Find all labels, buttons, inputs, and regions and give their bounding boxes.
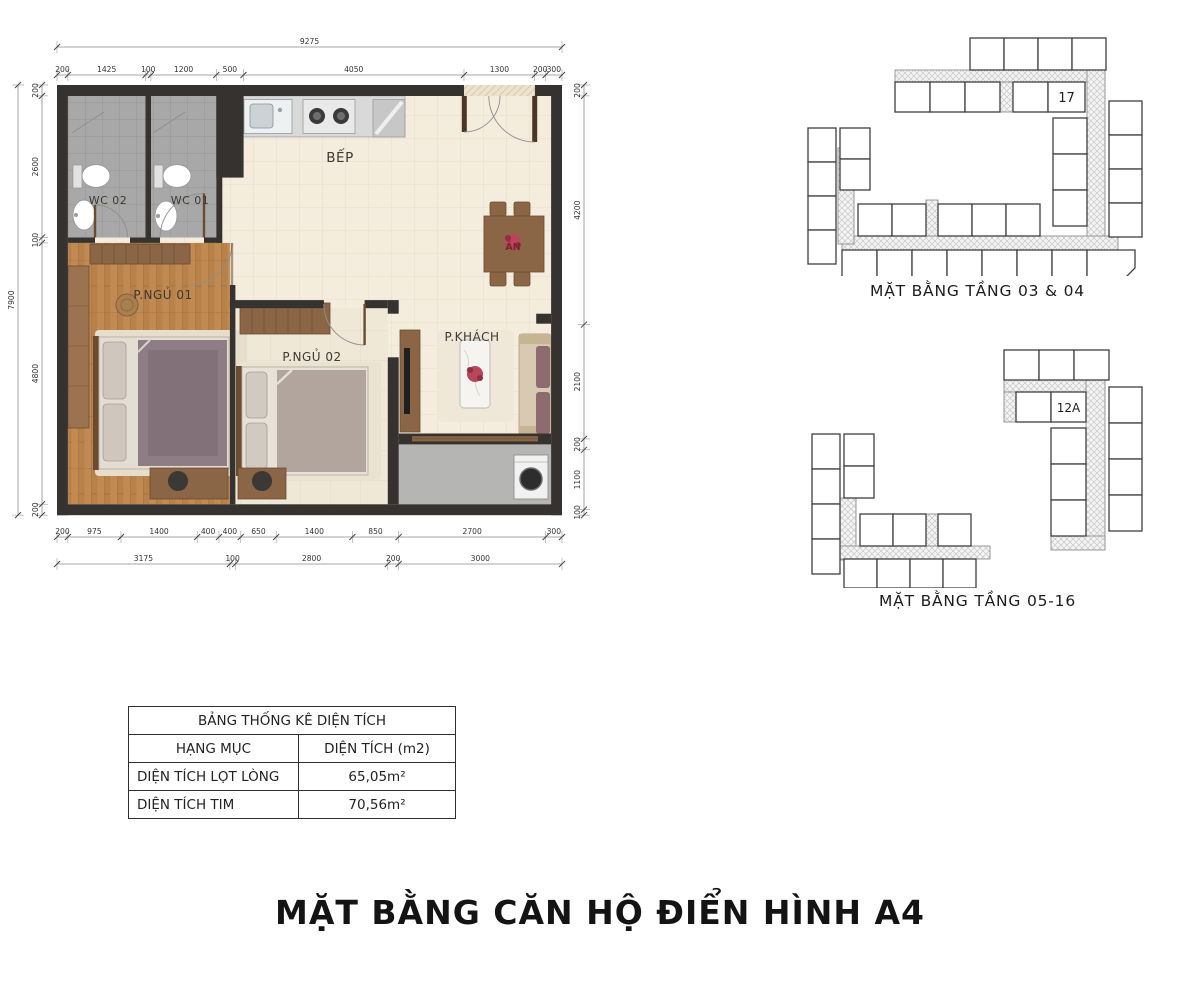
svg-text:1400: 1400 xyxy=(305,527,324,536)
table-row: DIỆN TÍCH TIM 70,56m² xyxy=(129,791,456,819)
svg-text:850: 850 xyxy=(368,527,383,536)
room-label-dining: ĂN xyxy=(505,241,520,253)
chair-bedroom1 xyxy=(168,471,188,491)
toilet-tank-wc01 xyxy=(154,165,163,188)
unit-17-label: 17 xyxy=(1058,91,1075,106)
svg-text:1425: 1425 xyxy=(97,65,116,74)
svg-text:1200: 1200 xyxy=(174,65,193,74)
key-plan-2-caption: MẶT BẰNG TẦNG 05-16 xyxy=(800,592,1155,610)
area-table-title: BẢNG THỐNG KÊ DIỆN TÍCH xyxy=(129,707,456,735)
kitchen-counter xyxy=(238,96,405,137)
entrance-threshold xyxy=(464,85,535,96)
toilet-tank-wc02 xyxy=(73,165,82,188)
room-label-wc2: WC 02 xyxy=(89,194,128,207)
toilet-wc01 xyxy=(163,165,191,188)
svg-text:100: 100 xyxy=(31,233,40,248)
page: BẾP WC 02 WC 01 P.NGỦ 01 P.NGỦ 02 P.KHÁC… xyxy=(0,0,1200,986)
svg-text:500: 500 xyxy=(223,65,238,74)
area-row-value: 65,05m² xyxy=(299,763,456,791)
key-plan-floors-03-04: 17 xyxy=(800,28,1155,276)
svg-text:200: 200 xyxy=(573,437,582,452)
room-label-bedroom2: P.NGỦ 02 xyxy=(282,348,341,364)
svg-text:9275: 9275 xyxy=(300,37,319,46)
svg-text:200: 200 xyxy=(55,527,70,536)
svg-text:2700: 2700 xyxy=(462,527,481,536)
svg-text:4800: 4800 xyxy=(31,364,40,383)
room-label-wc1: WC 01 xyxy=(171,194,210,207)
svg-text:1300: 1300 xyxy=(490,65,509,74)
area-row-label: DIỆN TÍCH TIM xyxy=(129,791,299,819)
svg-text:400: 400 xyxy=(223,527,238,536)
desk-bedroom1 xyxy=(150,468,228,499)
area-table: BẢNG THỐNG KÊ DIỆN TÍCH HẠNG MỤC DIỆN TÍ… xyxy=(128,706,456,819)
svg-text:200: 200 xyxy=(573,83,582,98)
svg-text:3000: 3000 xyxy=(471,554,490,563)
room-label-bedroom1: P.NGỦ 01 xyxy=(133,286,192,302)
unit-12a-label: 12A xyxy=(1057,401,1081,415)
area-table-col-item: HẠNG MỤC xyxy=(129,735,299,763)
svg-text:100: 100 xyxy=(225,554,240,563)
tv xyxy=(404,348,410,414)
area-table-col-area: DIỆN TÍCH (m2) xyxy=(299,735,456,763)
key-plan-1-caption: MẶT BẰNG TẦNG 03 & 04 xyxy=(800,282,1155,300)
svg-text:200: 200 xyxy=(386,554,401,563)
svg-text:2100: 2100 xyxy=(573,372,582,391)
svg-text:200: 200 xyxy=(55,65,70,74)
balcony-items xyxy=(514,455,548,499)
entry-door-leaf xyxy=(532,96,537,142)
bedroom-partition xyxy=(230,285,236,504)
svg-text:2800: 2800 xyxy=(302,554,321,563)
cabinet-bedroom1 xyxy=(68,266,89,428)
svg-text:3175: 3175 xyxy=(134,554,153,563)
wc-partition xyxy=(146,96,152,238)
area-row-label: DIỆN TÍCH LỌT LÒNG xyxy=(129,763,299,791)
svg-text:300: 300 xyxy=(547,527,562,536)
svg-text:100: 100 xyxy=(573,505,582,520)
area-row-value: 70,56m² xyxy=(299,791,456,819)
floor-plan: BẾP WC 02 WC 01 P.NGỦ 01 P.NGỦ 02 P.KHÁC… xyxy=(0,0,640,600)
key-plan-floors-05-16: 12A xyxy=(800,338,1155,588)
entry-door-leaf xyxy=(462,96,467,132)
svg-text:200: 200 xyxy=(31,502,40,517)
svg-text:1400: 1400 xyxy=(149,527,168,536)
svg-text:975: 975 xyxy=(87,527,102,536)
room-label-living: P.KHÁCH xyxy=(445,329,500,344)
svg-text:650: 650 xyxy=(251,527,266,536)
toilet-wc02 xyxy=(82,165,110,188)
svg-text:4200: 4200 xyxy=(573,200,582,219)
wardrobe-bedroom1 xyxy=(90,244,190,264)
svg-text:2600: 2600 xyxy=(31,157,40,176)
chair-bedroom2 xyxy=(252,471,272,491)
svg-text:200: 200 xyxy=(533,65,548,74)
svg-text:7900: 7900 xyxy=(7,290,16,309)
svg-text:300: 300 xyxy=(547,65,562,74)
table-row: DIỆN TÍCH LỌT LÒNG 65,05m² xyxy=(129,763,456,791)
svg-text:200: 200 xyxy=(31,83,40,98)
svg-text:4050: 4050 xyxy=(344,65,363,74)
room-label-kitchen: BẾP xyxy=(326,147,353,166)
svg-text:1100: 1100 xyxy=(573,470,582,489)
svg-text:100: 100 xyxy=(141,65,156,74)
svg-text:400: 400 xyxy=(201,527,216,536)
page-title: MẶT BẰNG CĂN HỘ ĐIỂN HÌNH A4 xyxy=(0,893,1200,932)
